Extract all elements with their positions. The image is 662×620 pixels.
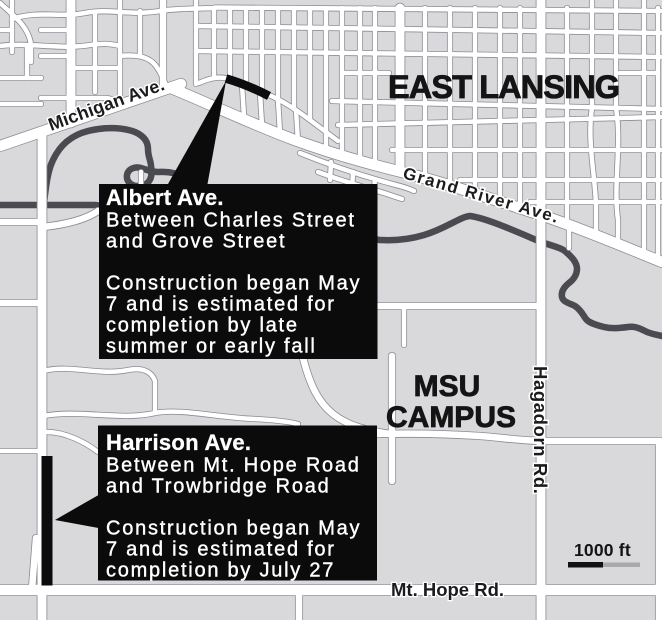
svg-text:Mt. Hope Rd.: Mt. Hope Rd. (391, 579, 504, 600)
svg-text:and Grove Street: and Grove Street (106, 231, 286, 253)
svg-text:Hagadorn Rd.: Hagadorn Rd. (530, 366, 551, 494)
svg-text:Construction began May: Construction began May (106, 273, 361, 295)
svg-text:Between Mt. Hope Road: Between Mt. Hope Road (106, 455, 361, 477)
svg-text:CAMPUS: CAMPUS (386, 401, 516, 434)
svg-text:summer or early fall: summer or early fall (106, 336, 317, 358)
svg-text:1000 ft: 1000 ft (574, 540, 631, 560)
svg-text:and Trowbridge Road: and Trowbridge Road (106, 476, 330, 498)
svg-text:MSU: MSU (414, 370, 481, 403)
svg-text:completion by late: completion by late (106, 315, 299, 337)
svg-text:7 and is estimated for: 7 and is estimated for (106, 294, 336, 316)
svg-text:Construction began May: Construction began May (106, 518, 361, 540)
svg-text:Albert Ave.: Albert Ave. (106, 185, 224, 210)
svg-text:EAST LANSING: EAST LANSING (388, 69, 619, 105)
svg-text:Harrison Ave.: Harrison Ave. (106, 430, 251, 455)
svg-text:7 and is estimated for: 7 and is estimated for (106, 539, 336, 561)
svg-text:Between Charles Street: Between Charles Street (106, 210, 356, 232)
svg-text:completion by July 27: completion by July 27 (106, 560, 335, 582)
